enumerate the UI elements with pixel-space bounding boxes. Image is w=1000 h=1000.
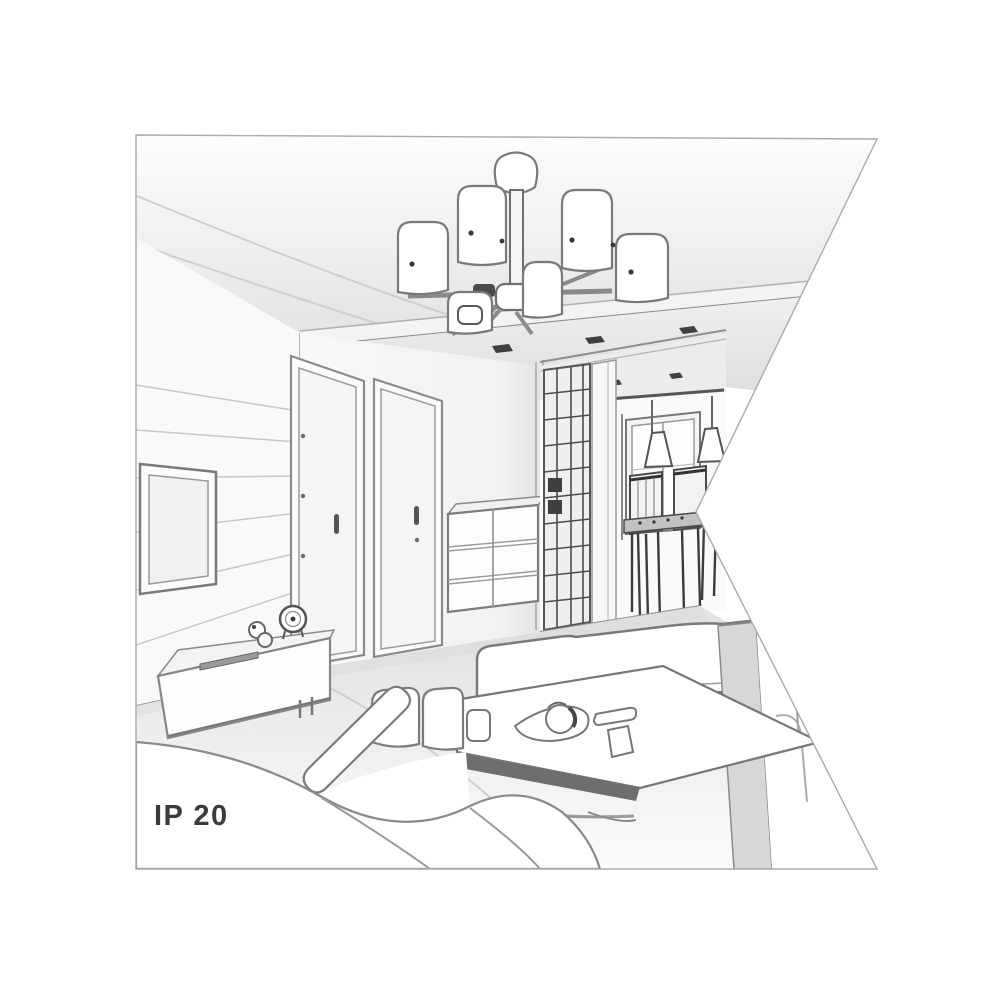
glass-wardrobe — [544, 364, 590, 630]
ip-rating-label: IP 20 — [154, 802, 229, 831]
cup-1 — [467, 710, 490, 741]
lamp-shade-2 — [458, 186, 506, 265]
door-left-handle — [334, 514, 339, 534]
lamp-shade-3 — [562, 190, 612, 271]
lamp-shade-4 — [616, 234, 668, 302]
door-right-handle — [414, 506, 419, 525]
lamp-shade-6 — [523, 262, 562, 318]
tv-screen — [149, 475, 208, 584]
chandelier-stem — [510, 190, 523, 288]
headrest-2 — [423, 688, 463, 750]
lamp-shade-5 — [448, 292, 492, 334]
product-scene: IP 20 — [0, 0, 1000, 1000]
chandelier-canopy — [495, 153, 537, 194]
room-illustration — [0, 0, 1000, 1000]
lamp-shade-1 — [398, 222, 448, 294]
door-right — [374, 379, 442, 657]
wardrobe-handle-1 — [548, 478, 562, 492]
cup-2 — [608, 726, 633, 757]
hallway — [540, 330, 740, 655]
drawer-chest — [448, 496, 546, 612]
wardrobe-handle-2 — [548, 500, 562, 514]
hall-partition — [592, 360, 616, 626]
doors-wall — [291, 333, 546, 670]
